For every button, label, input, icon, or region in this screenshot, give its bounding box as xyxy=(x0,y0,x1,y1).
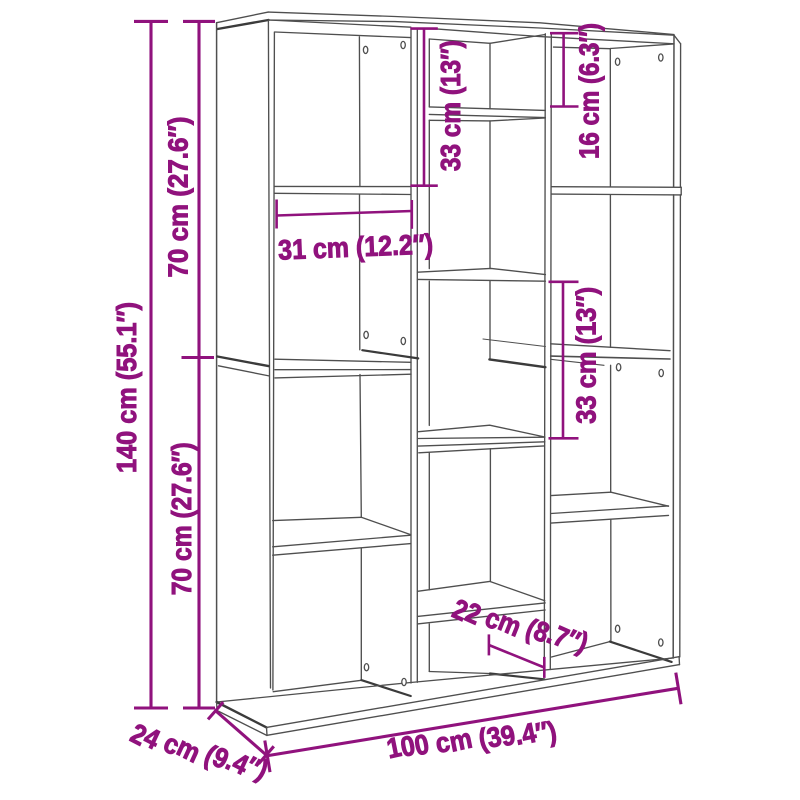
svg-text:70 cm (27.6″): 70 cm (27.6″) xyxy=(166,442,197,595)
svg-text:31 cm (12.2″): 31 cm (12.2″) xyxy=(278,228,434,265)
svg-text:70 cm (27.6″): 70 cm (27.6″) xyxy=(163,117,194,278)
svg-text:16 cm (6.3″): 16 cm (6.3″) xyxy=(574,23,605,159)
svg-text:33 cm (13″): 33 cm (13″) xyxy=(435,40,466,171)
svg-text:33 cm (13″): 33 cm (13″) xyxy=(570,287,601,424)
svg-text:140 cm (55.1″): 140 cm (55.1″) xyxy=(111,302,142,473)
